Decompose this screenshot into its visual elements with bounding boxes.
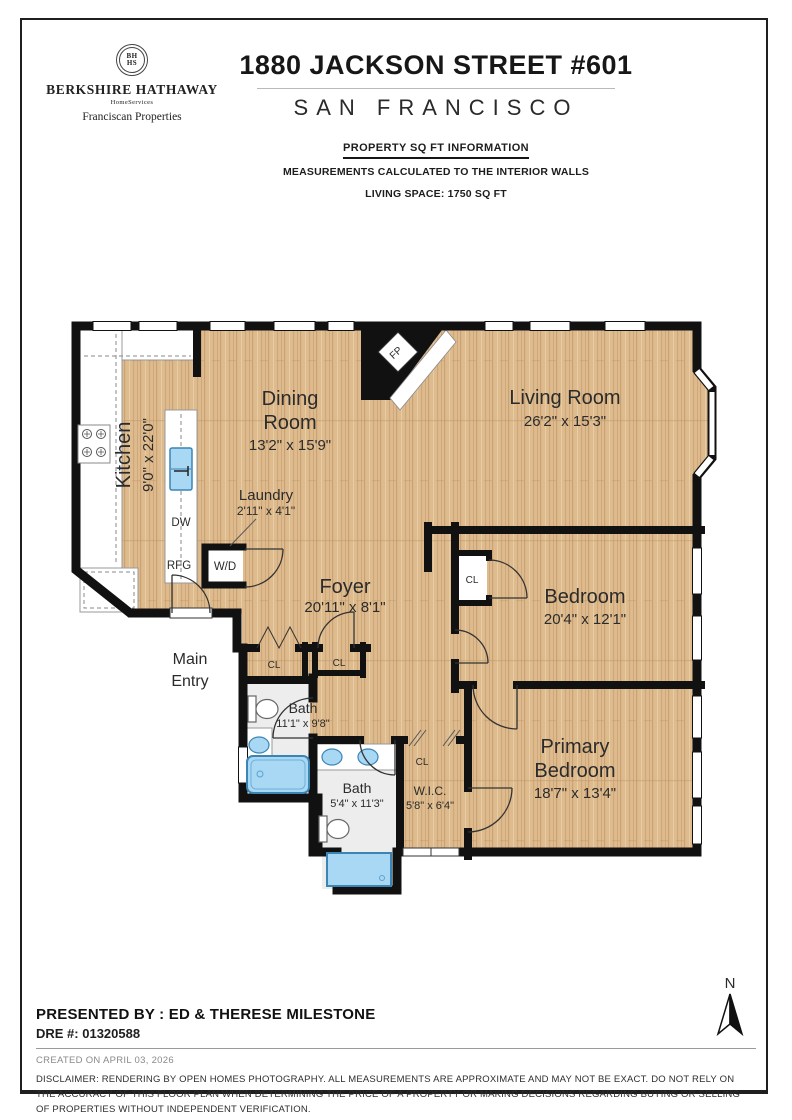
closet2-label: CL <box>333 658 346 669</box>
shower-icon <box>327 853 391 886</box>
title-block: 1880 JACKSON STREET #601 SAN FRANCISCO P… <box>160 50 712 200</box>
room-dims-dining: 13'2" x 15'9" <box>249 437 331 454</box>
bathtub-icon <box>247 756 309 793</box>
room-label-laundry: Laundry <box>239 487 294 504</box>
created-on: CREATED ON APRIL 03, 2026 <box>36 1055 756 1066</box>
room-label-wic: W.I.C. <box>414 784 447 798</box>
kitchen-sink-icon <box>170 448 192 490</box>
room-dims-laundry: 2'11" x 4'1" <box>237 504 295 518</box>
room-label-bath2: Bath <box>343 780 372 796</box>
footer: PRESENTED BY : ED & THERESE MILESTONE DR… <box>36 1006 756 1117</box>
footer-divider <box>36 1048 756 1049</box>
compass-north-label: N <box>725 975 736 992</box>
sqft-title: PROPERTY SQ FT INFORMATION <box>343 142 529 159</box>
bhhs-seal-icon: BH HS <box>116 44 148 76</box>
refrigerator-label: RFG <box>167 560 191 572</box>
main-entry-label-1: Main <box>173 651 208 668</box>
room-label-kitchen: Kitchen <box>113 422 135 489</box>
closet1-label: CL <box>268 660 281 671</box>
room-dims-bedroom: 20'4" x 12'1" <box>544 611 626 628</box>
room-label-bath1: Bath <box>289 700 318 716</box>
bedroom-closet-label: CL <box>466 575 479 586</box>
property-address: 1880 JACKSON STREET #601 <box>160 50 712 81</box>
room-label-primary-1: Primary <box>541 736 610 758</box>
room-label-foyer: Foyer <box>319 576 370 598</box>
dre-number: DRE #: 01320588 <box>36 1026 756 1041</box>
floor-plan-page: BH HS BERKSHIRE HATHAWAY HomeServices Fr… <box>0 0 792 1120</box>
room-label-dining-1: Dining <box>262 388 319 410</box>
washer-dryer-label: W/D <box>214 561 236 573</box>
disclaimer: DISCLAIMER: RENDERING BY OPEN HOMES PHOT… <box>36 1072 742 1117</box>
sqft-living-space: LIVING SPACE: 1750 SQ FT <box>160 188 712 200</box>
wic-closet-label: CL <box>416 757 429 768</box>
room-dims-living: 26'2" x 15'3" <box>524 413 606 430</box>
bath1-sink-icon <box>249 737 269 753</box>
room-dims-primary: 18'7" x 13'4" <box>534 785 616 802</box>
room-dims-kitchen: 9'0" x 22'0" <box>140 418 157 492</box>
room-dims-wic: 5'8" x 6'4" <box>406 800 454 812</box>
floor-plan: FP <box>60 300 750 915</box>
room-dims-bath1: 11'1" x 9'8" <box>276 718 329 730</box>
main-entry-label-2: Entry <box>171 673 208 690</box>
seal-text-bottom: HS <box>127 60 137 67</box>
address-underline <box>257 88 615 89</box>
room-label-primary-2: Bedroom <box>534 760 615 782</box>
room-label-bedroom: Bedroom <box>544 586 625 608</box>
presented-by: PRESENTED BY : ED & THERESE MILESTONE <box>36 1006 756 1023</box>
room-label-living: Living Room <box>509 387 620 409</box>
sqft-note: MEASUREMENTS CALCULATED TO THE INTERIOR … <box>160 166 712 178</box>
room-dims-bath2: 5'4" x 11'3" <box>330 798 383 810</box>
room-dims-foyer: 20'11" x 8'1" <box>304 599 385 616</box>
dishwasher-label: DW <box>171 517 190 529</box>
entry-door-leaf <box>170 608 212 618</box>
stove-icon <box>78 425 110 463</box>
sqft-info: PROPERTY SQ FT INFORMATION MEASUREMENTS … <box>160 138 712 200</box>
room-label-dining-2: Room <box>263 412 316 434</box>
property-city: SAN FRANCISCO <box>160 95 712 121</box>
